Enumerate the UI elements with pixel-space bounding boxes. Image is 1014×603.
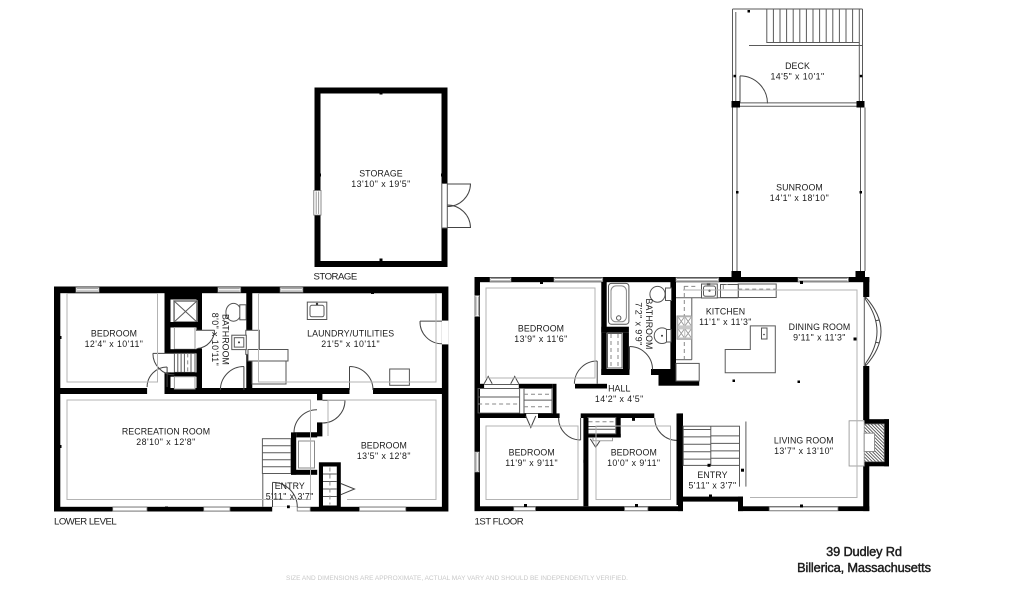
svg-text:BEDROOM: BEDROOM [361, 441, 407, 451]
svg-text:KITCHEN: KITCHEN [706, 307, 745, 317]
svg-text:LOWER LEVEL: LOWER LEVEL [54, 517, 117, 528]
svg-text:LIVING ROOM: LIVING ROOM [774, 436, 834, 446]
svg-text:ENTRY: ENTRY [275, 481, 305, 491]
svg-text:12'4" x 10'11": 12'4" x 10'11" [85, 339, 144, 349]
svg-text:7'2" x 9'9": 7'2" x 9'9" [634, 302, 644, 345]
svg-text:10'0" x 9'11": 10'0" x 9'11" [607, 458, 660, 468]
svg-text:39 Dudley Rd: 39 Dudley Rd [826, 544, 902, 559]
svg-text:21'5" x 10'11": 21'5" x 10'11" [321, 339, 380, 349]
svg-text:9'11" x 11'3": 9'11" x 11'3" [793, 333, 846, 343]
svg-text:13'9" x 11'6": 13'9" x 11'6" [514, 334, 567, 344]
svg-text:BEDROOM: BEDROOM [611, 448, 657, 458]
svg-text:11'9" x 9'11": 11'9" x 9'11" [505, 458, 558, 468]
svg-text:SUNROOM: SUNROOM [776, 183, 823, 193]
svg-text:5'11" x 3'7": 5'11" x 3'7" [266, 492, 314, 502]
svg-text:14'1" x 18'10": 14'1" x 18'10" [770, 193, 829, 203]
svg-text:BEDROOM: BEDROOM [518, 324, 564, 334]
svg-text:STORAGE: STORAGE [314, 272, 357, 283]
svg-text:RECREATION ROOM: RECREATION ROOM [122, 427, 210, 437]
svg-text:ENTRY: ENTRY [697, 470, 727, 480]
svg-text:8'0" x 10'11": 8'0" x 10'11" [210, 313, 220, 366]
svg-text:14'5" x 10'1": 14'5" x 10'1" [770, 72, 824, 82]
svg-text:BATHROOM: BATHROOM [644, 299, 654, 350]
svg-text:DECK: DECK [785, 61, 810, 71]
svg-text:SIZE AND DIMENSIONS ARE APPROX: SIZE AND DIMENSIONS ARE APPROXIMATE, ACT… [286, 575, 628, 582]
svg-text:Billerica, Massachusetts: Billerica, Massachusetts [797, 560, 931, 575]
svg-text:LAUNDRY/UTILITIES: LAUNDRY/UTILITIES [307, 329, 394, 339]
svg-text:5'11" x 3'7": 5'11" x 3'7" [688, 481, 736, 491]
svg-text:BEDROOM: BEDROOM [91, 329, 137, 339]
svg-text:DINING ROOM: DINING ROOM [789, 322, 851, 332]
svg-text:14'2" x 4'5": 14'2" x 4'5" [595, 394, 644, 404]
svg-text:13'10" x 19'5": 13'10" x 19'5" [351, 179, 410, 189]
svg-text:BATHROOM: BATHROOM [221, 314, 231, 365]
svg-text:11'1" x 11'3": 11'1" x 11'3" [699, 317, 752, 327]
svg-text:13'7" x 13'10": 13'7" x 13'10" [774, 446, 833, 456]
svg-text:BEDROOM: BEDROOM [509, 448, 555, 458]
svg-text:1ST FLOOR: 1ST FLOOR [475, 517, 524, 528]
svg-text:STORAGE: STORAGE [359, 169, 403, 179]
svg-text:13'5" x 12'8": 13'5" x 12'8" [357, 451, 411, 461]
svg-text:28'10" x 12'8": 28'10" x 12'8" [136, 437, 195, 447]
svg-text:HALL: HALL [608, 384, 630, 394]
